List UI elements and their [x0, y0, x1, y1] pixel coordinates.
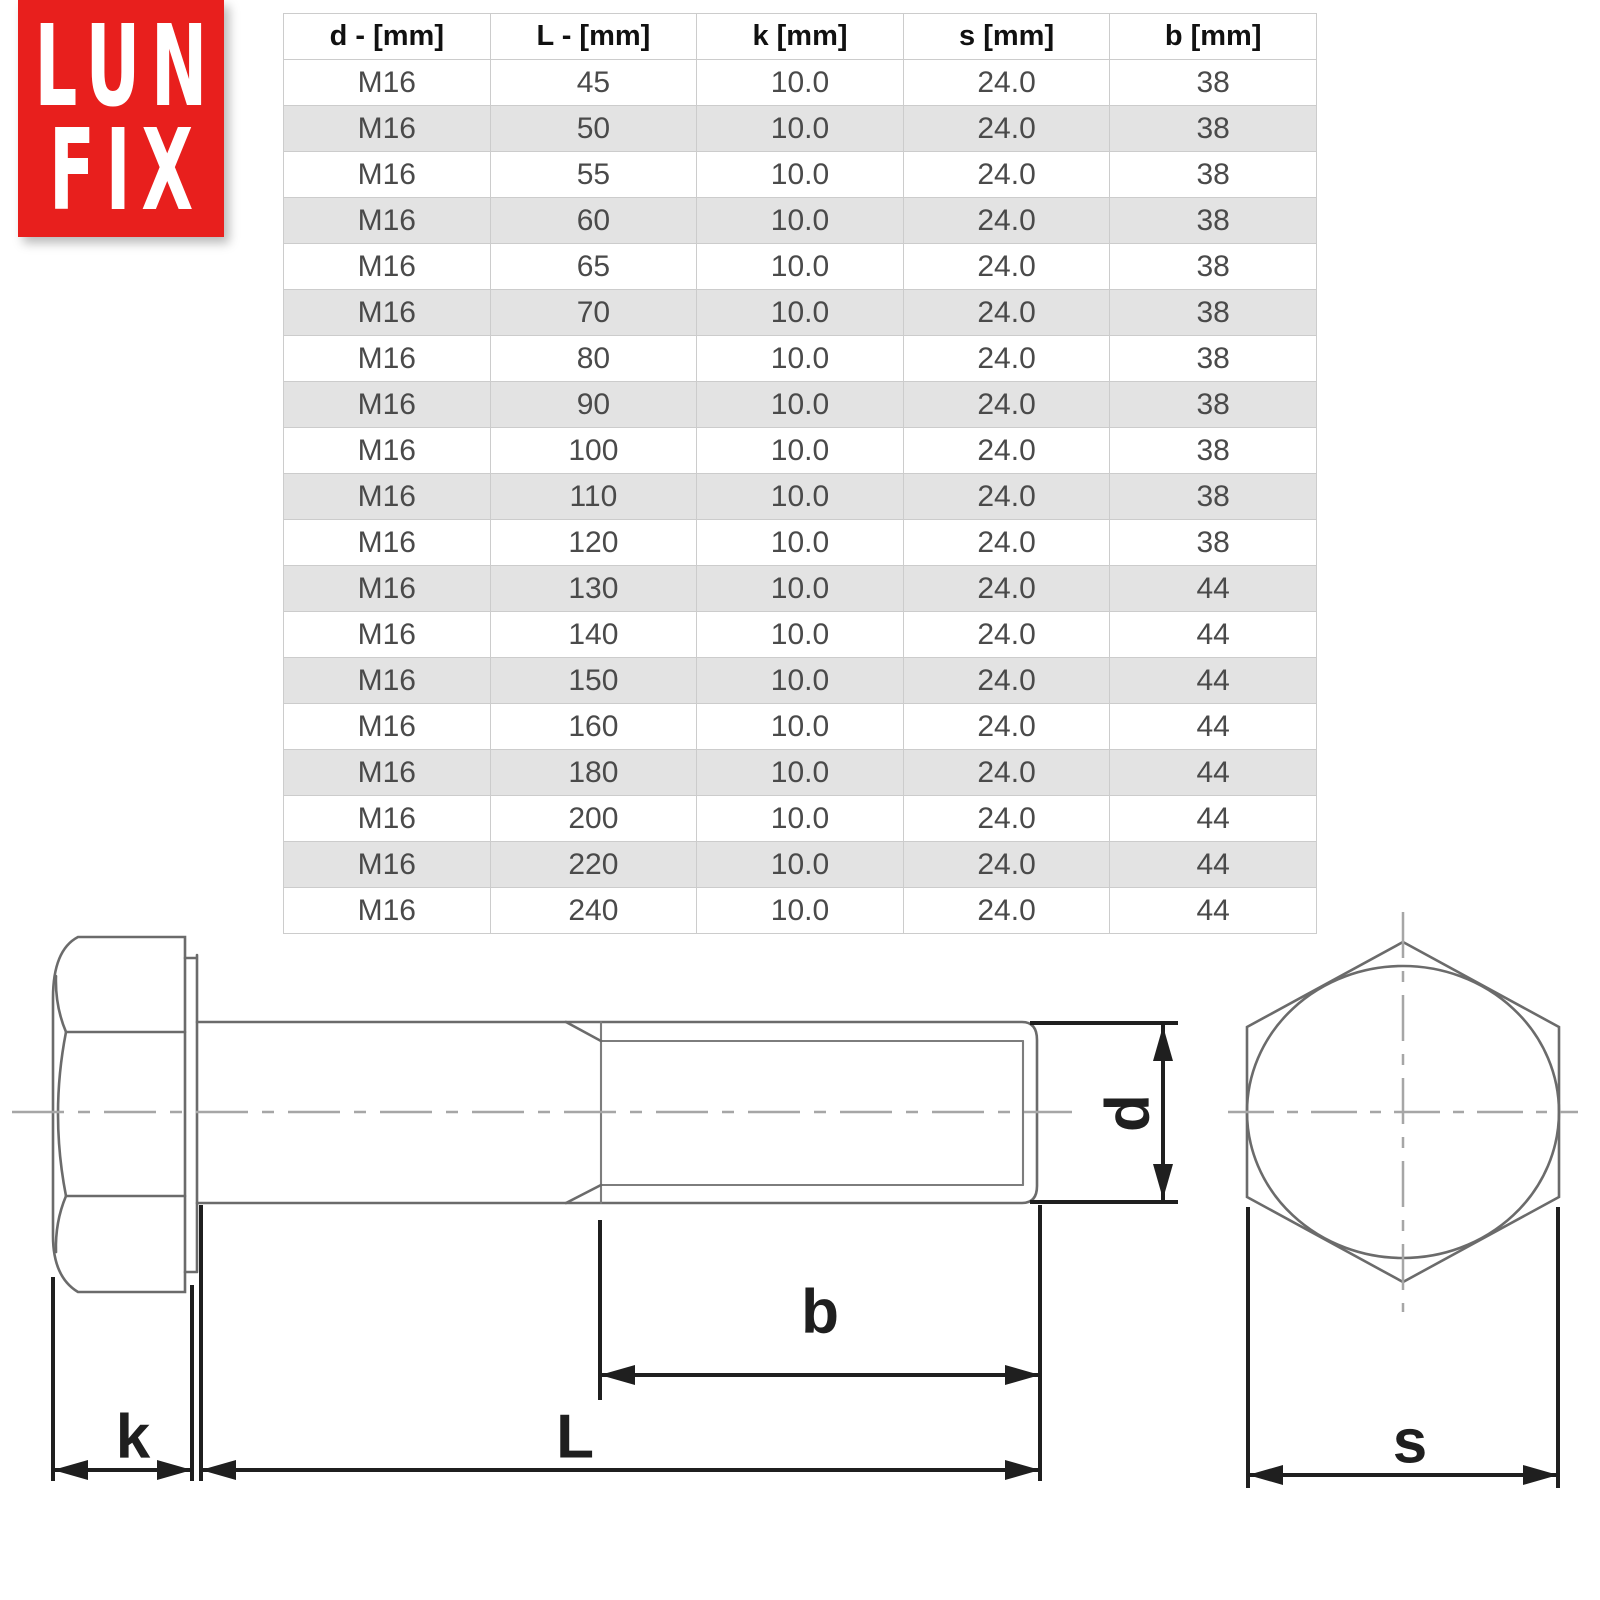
- dimension-arrowheads: [53, 1026, 1558, 1485]
- arrow-b-right: [1005, 1365, 1040, 1385]
- bolt-technical-drawing: [0, 0, 1600, 1600]
- dimension-lines: [53, 1023, 1558, 1488]
- arrow-L-right: [1005, 1460, 1040, 1480]
- thread-runout-bottom: [566, 1185, 601, 1203]
- product-spec-image: { "logo": { "line1": "LUN", "line2": "FI…: [0, 0, 1600, 1600]
- bolt-washer-face: [185, 955, 197, 1272]
- bolt-head-chamfer-arc-top: [56, 976, 66, 1032]
- dim-label-s: s: [1393, 1407, 1427, 1478]
- arrow-d-top: [1153, 1026, 1173, 1061]
- bolt-head-chamfer-arc-middle: [58, 1032, 66, 1196]
- arrow-s-left: [1248, 1465, 1283, 1485]
- arrow-k-left: [53, 1460, 88, 1480]
- thread-runout-top: [566, 1022, 601, 1041]
- dim-label-k: k: [116, 1402, 150, 1473]
- arrow-b-left: [600, 1365, 635, 1385]
- end-view-centerlines: [1228, 912, 1578, 1312]
- bolt-head-chamfer-arc-bottom: [56, 1196, 66, 1252]
- arrow-k-right: [157, 1460, 192, 1480]
- arrow-L-left: [201, 1460, 236, 1480]
- bolt-head-outline: [53, 937, 185, 1292]
- dim-label-b: b: [801, 1277, 839, 1348]
- dim-label-d: d: [1093, 1094, 1164, 1132]
- dim-label-L: L: [556, 1402, 594, 1473]
- arrow-s-right: [1523, 1465, 1558, 1485]
- arrow-d-bottom: [1153, 1164, 1173, 1199]
